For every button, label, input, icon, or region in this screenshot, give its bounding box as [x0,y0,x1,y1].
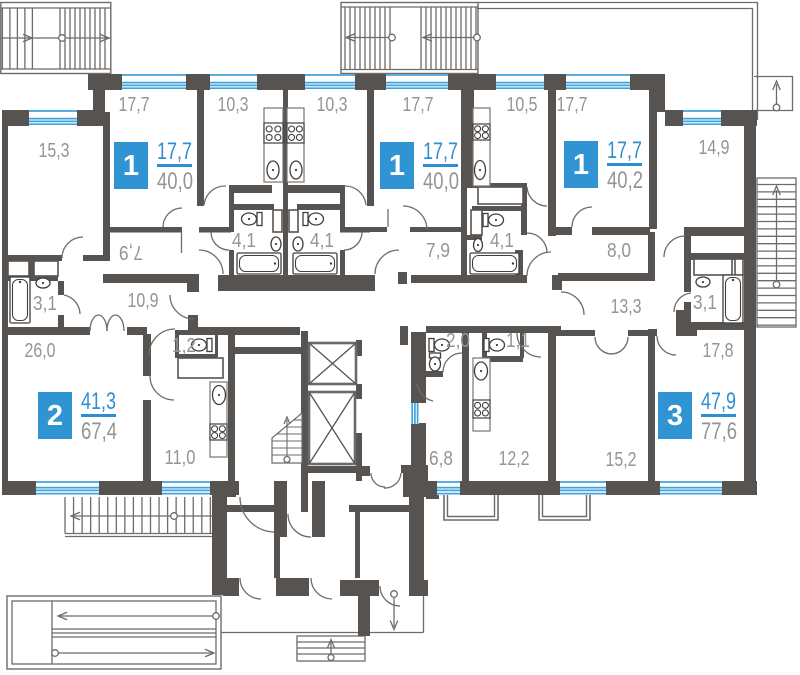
svg-text:15,3: 15,3 [39,140,70,162]
svg-text:7,9: 7,9 [119,241,143,263]
svg-text:17,7: 17,7 [557,94,588,116]
svg-text:3: 3 [667,400,683,432]
svg-text:17,8: 17,8 [703,340,734,362]
svg-text:14,9: 14,9 [699,137,730,159]
svg-text:12,2: 12,2 [499,448,530,470]
svg-text:17,7: 17,7 [119,94,150,116]
svg-text:1,1: 1,1 [506,330,530,352]
svg-text:17,7: 17,7 [423,138,458,165]
svg-text:47,9: 47,9 [701,388,736,415]
svg-text:11,0: 11,0 [165,447,196,469]
svg-text:8,0: 8,0 [607,240,631,262]
svg-text:40,2: 40,2 [607,167,643,194]
svg-text:10,9: 10,9 [128,290,159,312]
svg-text:2,0: 2,0 [446,330,470,352]
svg-text:17,7: 17,7 [607,137,642,164]
svg-text:15,2: 15,2 [606,449,637,471]
svg-text:1: 1 [389,150,405,182]
svg-text:1: 1 [573,149,589,181]
svg-text:40,0: 40,0 [157,168,193,195]
svg-text:3,1: 3,1 [693,292,717,314]
svg-text:26,0: 26,0 [25,340,56,362]
svg-text:10,5: 10,5 [507,94,538,116]
svg-text:7,9: 7,9 [426,240,450,262]
svg-text:40,0: 40,0 [423,168,459,195]
svg-text:1,2: 1,2 [172,335,196,357]
svg-text:4,1: 4,1 [310,230,334,252]
svg-text:4,1: 4,1 [232,230,256,252]
svg-text:6,8: 6,8 [429,448,453,470]
svg-text:10,3: 10,3 [218,94,249,116]
svg-text:2: 2 [47,400,63,432]
svg-text:3,1: 3,1 [33,293,57,315]
svg-text:1: 1 [123,150,139,182]
svg-text:4,1: 4,1 [490,230,514,252]
svg-text:13,3: 13,3 [611,296,642,318]
svg-text:41,3: 41,3 [81,388,116,415]
svg-text:17,7: 17,7 [403,94,434,116]
svg-text:10,3: 10,3 [317,94,348,116]
svg-text:77,6: 77,6 [701,418,737,445]
svg-text:17,7: 17,7 [157,138,192,165]
svg-text:67,4: 67,4 [81,418,117,445]
